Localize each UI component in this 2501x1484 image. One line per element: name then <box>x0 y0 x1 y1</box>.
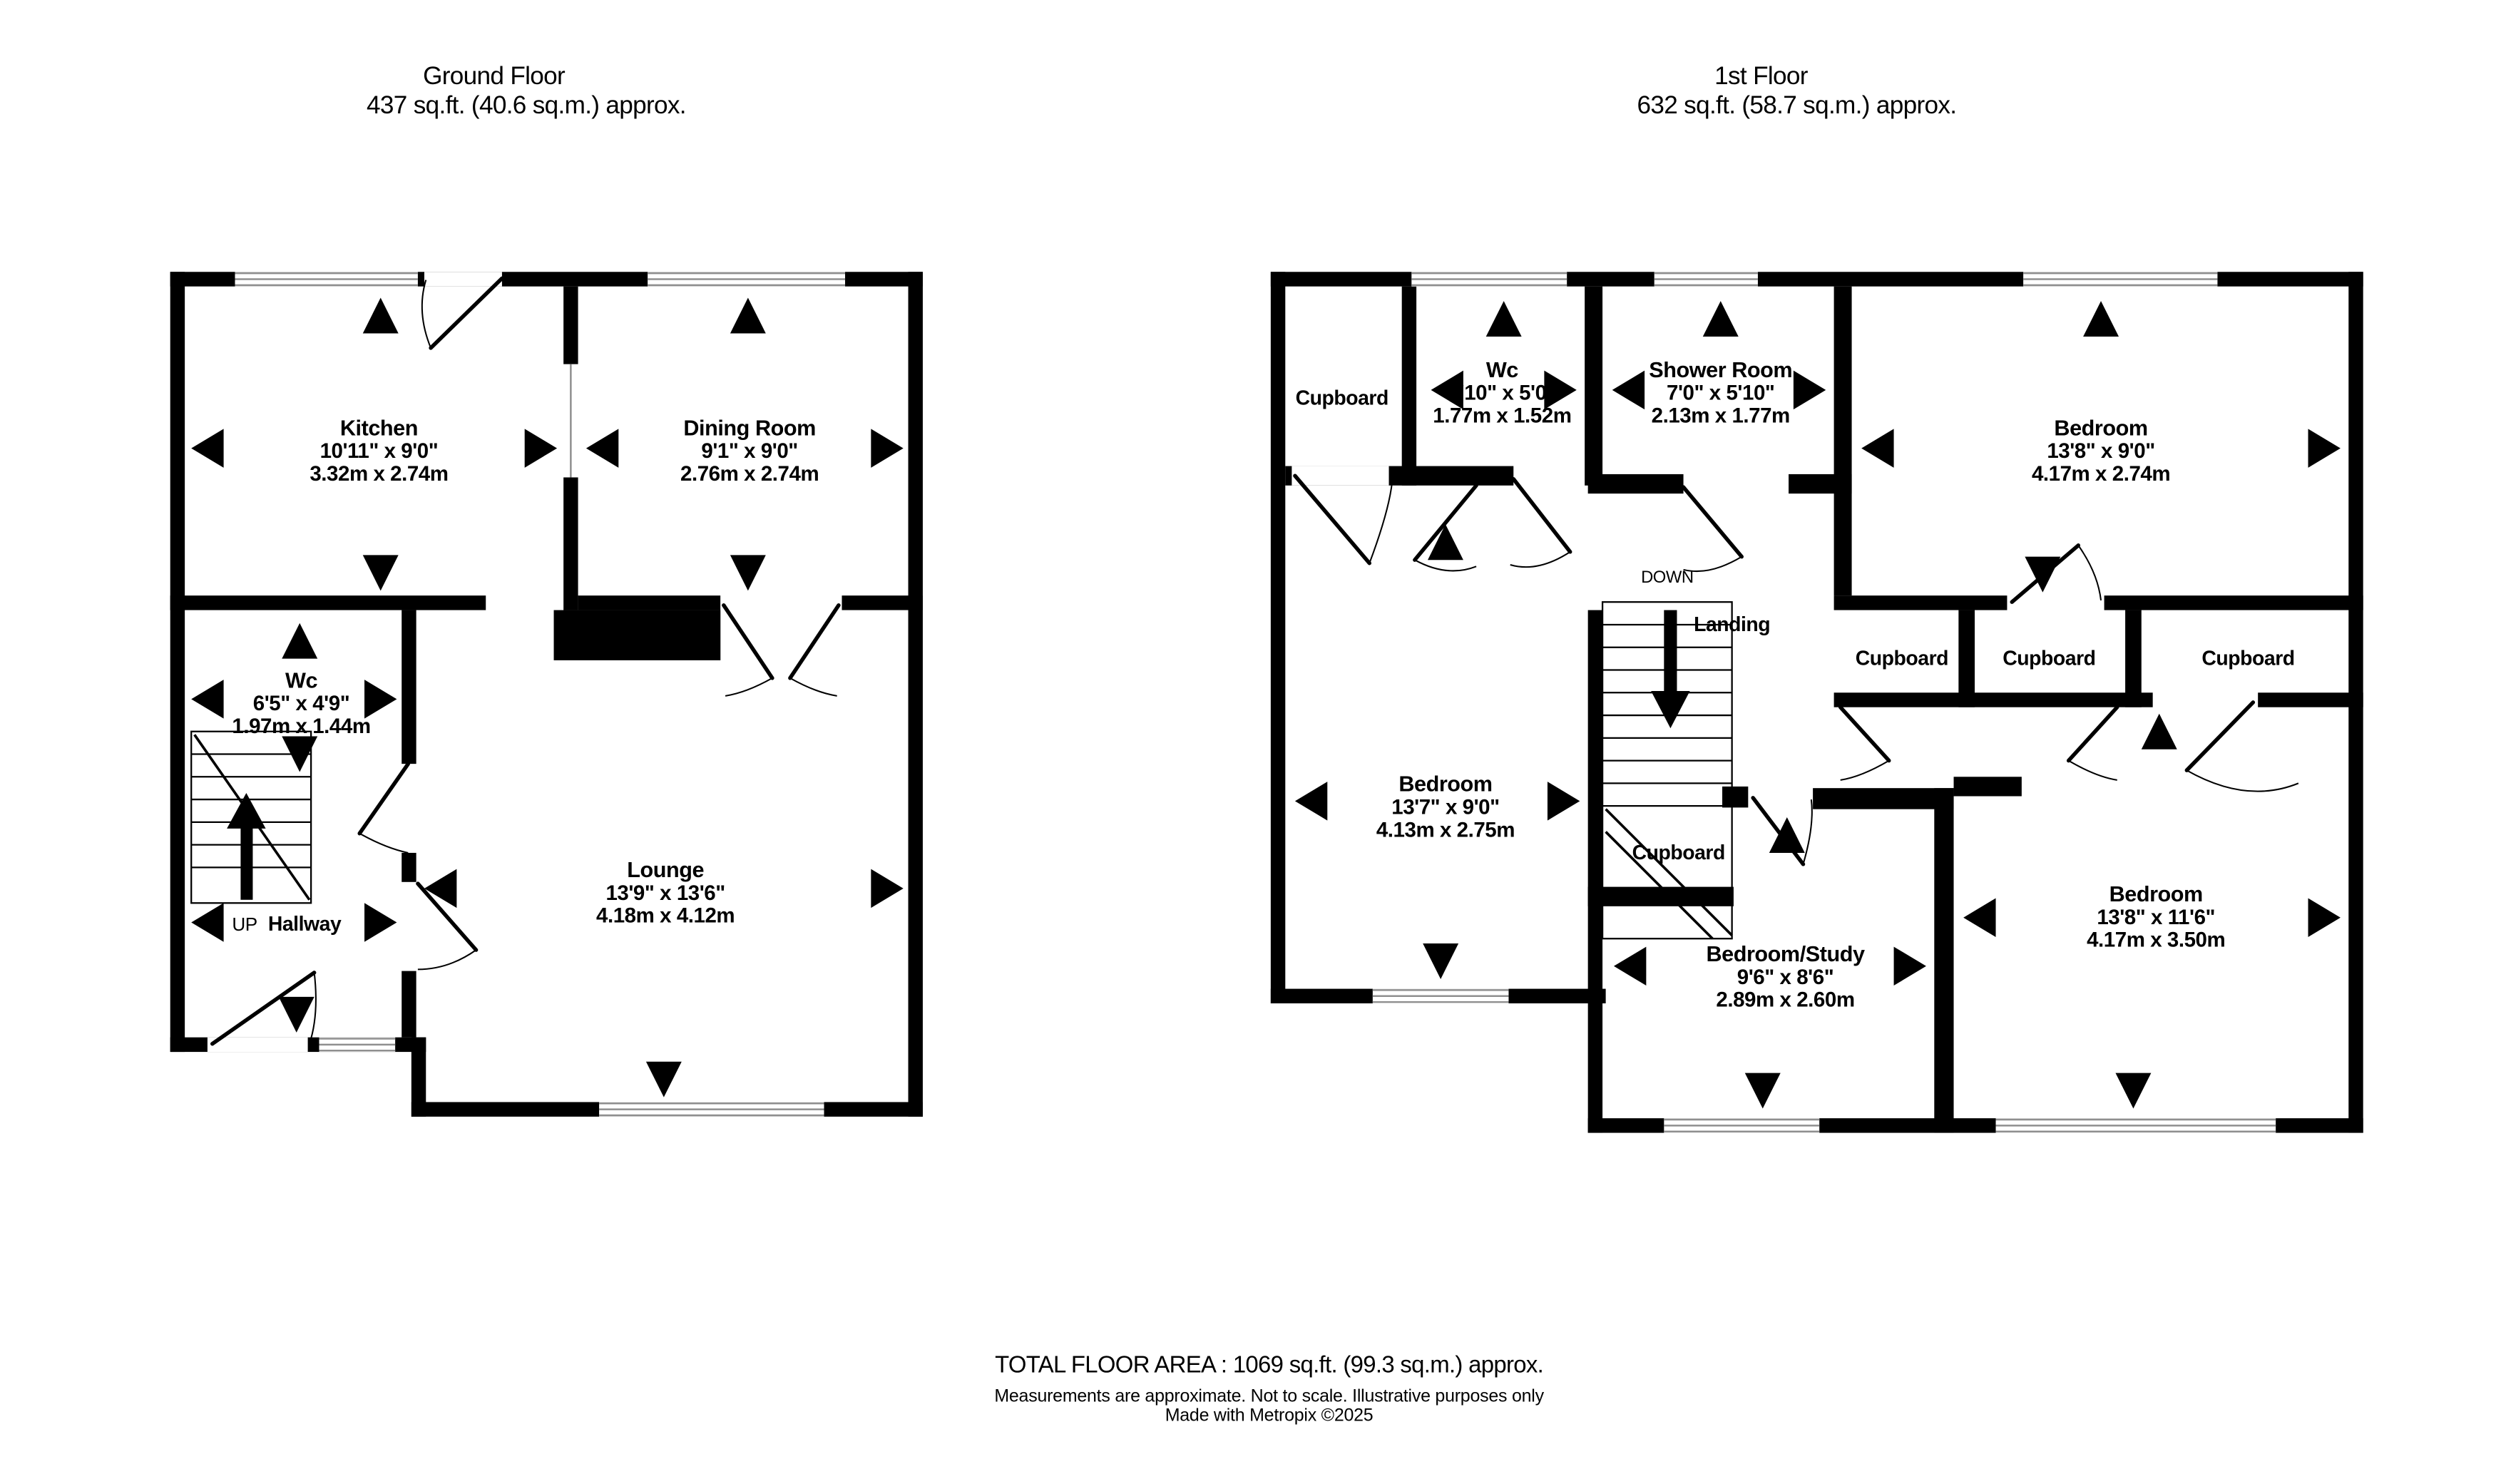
door <box>1510 479 1570 567</box>
door <box>2187 702 2298 792</box>
wall <box>1834 595 2008 610</box>
door-arc <box>725 678 772 696</box>
room-label-shower: Shower Room 7'0" x 5'10" 2.13m x 1.77m <box>1649 358 1792 428</box>
wall <box>1588 887 1734 906</box>
window <box>1373 989 1509 1003</box>
wall <box>1402 287 1416 486</box>
dimension-arrow-left <box>1963 898 1995 936</box>
door-arc <box>1841 761 1889 780</box>
dimension-arrow-left <box>586 429 618 467</box>
window <box>319 1038 395 1052</box>
wall <box>1834 692 2153 707</box>
room-name: Kitchen <box>340 416 418 440</box>
dimension-arrow-down <box>646 1062 682 1097</box>
room-name: Bedroom <box>2054 416 2147 440</box>
dimension-arrow-down <box>1423 943 1458 979</box>
door <box>1292 466 1392 563</box>
wall <box>402 853 416 882</box>
door <box>359 764 408 853</box>
room-label-dining: Dining Room 9'1" x 9'0" 2.76m x 2.74m <box>680 416 819 486</box>
door-leaf <box>431 278 502 348</box>
room-dim-metric: 1.97m x 1.44m <box>232 715 370 738</box>
door <box>2069 707 2117 780</box>
ground-floor-plan: Ground Floor 437 sq.ft. (40.6 sq.m.) app… <box>170 62 923 1117</box>
room-dim-metric: 2.76m x 2.74m <box>680 462 819 486</box>
landing-label: Landing <box>1694 613 1770 636</box>
dimension-arrow-up <box>2083 301 2119 337</box>
dimension-arrow-down <box>279 997 314 1033</box>
up-label: UP <box>232 914 257 935</box>
first-floor-plan: 1st Floor 632 sq.ft. (58.7 sq.m.) approx… <box>1271 62 2363 1133</box>
credit: Made with Metropix ©2025 <box>1165 1405 1374 1425</box>
wall <box>563 287 578 364</box>
room-name: Wc <box>285 668 317 692</box>
door-leaf <box>2187 702 2253 770</box>
room-label-wc: Wc 5'10" x 5'0" 1.77m x 1.52m <box>1433 358 1571 428</box>
down-arrow-head <box>1651 691 1689 728</box>
room-name: Wc <box>1486 358 1518 382</box>
total-floor-area: TOTAL FLOOR AREA : 1069 sq.ft. (99.3 sq.… <box>995 1351 1543 1377</box>
cupboard-label: Cupboard <box>1856 648 1948 670</box>
room-dim-imperial: 13'9" x 13'6" <box>605 881 725 905</box>
floor-area: 632 sq.ft. (58.7 sq.m.) approx. <box>1637 91 1956 119</box>
door-leaf <box>790 605 839 678</box>
floor-area: 437 sq.ft. (40.6 sq.m.) approx. <box>367 91 686 119</box>
down-label: DOWN <box>1641 568 1694 587</box>
dimension-arrow-right <box>1548 782 1580 820</box>
dimension-arrow-down <box>730 555 766 590</box>
room-dim-metric: 3.32m x 2.74m <box>310 462 448 486</box>
dimension-arrow-up <box>282 623 317 659</box>
room-label-bedroom-top: Bedroom 13'8" x 9'0" 4.17m x 2.74m <box>2032 416 2170 486</box>
wall <box>2258 692 2363 707</box>
ground-floor-room-labels: Kitchen 10'11" x 9'0" 3.32m x 2.74m Dini… <box>232 416 819 935</box>
dimension-arrow-left <box>191 903 223 941</box>
wall <box>563 477 578 610</box>
door-leaf <box>2069 707 2117 761</box>
wall <box>170 595 486 610</box>
window <box>648 272 845 286</box>
wall <box>578 595 721 610</box>
dimension-arrow-up <box>1769 817 1805 853</box>
dimension-arrow-left <box>1612 371 1645 409</box>
room-dim-metric: 1.77m x 1.52m <box>1433 404 1571 427</box>
dimension-arrow-left <box>424 869 456 908</box>
room-dim-imperial: 9'6" x 8'6" <box>1737 966 1833 989</box>
wall <box>1271 272 1285 1003</box>
room-dim-imperial: 7'0" x 5'10" <box>1667 382 1774 405</box>
stair-break-line <box>1606 809 1732 936</box>
door-arc <box>422 280 431 348</box>
room-dim-imperial: 10'11" x 9'0" <box>320 439 439 463</box>
dimension-arrow-right <box>2308 898 2341 936</box>
up-arrow-head <box>227 793 265 829</box>
room-dim-imperial: 13'8" x 11'6" <box>2097 906 2215 929</box>
dimension-arrow-right <box>525 429 557 467</box>
wall <box>1588 474 1684 493</box>
room-dim-metric: 4.13m x 2.75m <box>1376 818 1515 841</box>
floor-title: 1st Floor <box>1714 62 1809 90</box>
dimension-arrow-up <box>1428 524 1463 560</box>
ground-floor-title: Ground Floor 437 sq.ft. (40.6 sq.m.) app… <box>367 62 686 119</box>
room-name: Lounge <box>627 858 704 882</box>
wall <box>1834 287 1852 595</box>
chimney-breast <box>554 610 721 660</box>
door-leaf <box>1513 479 1570 552</box>
dimension-arrow-up <box>730 298 766 334</box>
window <box>1664 1118 1819 1132</box>
door-arc <box>1415 560 1476 570</box>
floorplan-canvas: Ground Floor 437 sq.ft. (40.6 sq.m.) app… <box>0 0 2501 1484</box>
room-name: Bedroom <box>2109 882 2203 906</box>
dimension-arrow-down <box>1745 1073 1781 1109</box>
disclaimer: Measurements are approximate. Not to sca… <box>994 1386 1544 1406</box>
window <box>1411 272 1567 286</box>
door-arc <box>1510 552 1570 567</box>
door-leaf <box>1295 476 1369 563</box>
door-opening <box>1292 466 1388 486</box>
room-dim-imperial: 5'10" x 5'0" <box>1448 382 1556 405</box>
door-arc <box>1803 799 1811 864</box>
door-opening <box>424 272 502 286</box>
wall <box>842 595 922 610</box>
dimension-arrow-down <box>2115 1073 2151 1109</box>
door-arc <box>418 950 476 969</box>
dimension-arrow-right <box>364 680 397 718</box>
dimension-arrow-left <box>1614 947 1646 986</box>
room-name: Dining Room <box>683 416 816 440</box>
wall <box>402 610 416 764</box>
room-name: Shower Room <box>1649 358 1792 382</box>
door <box>1684 487 1742 571</box>
room-dim-imperial: 9'1" x 9'0" <box>701 439 797 463</box>
door-leaf <box>1841 707 1889 761</box>
window <box>1654 272 1758 286</box>
wall <box>1954 777 2022 796</box>
door <box>2012 546 2101 602</box>
dimension-arrow-right <box>1794 371 1826 409</box>
room-dim-imperial: 13'7" x 9'0" <box>1391 795 1499 819</box>
room-name: Bedroom/Study <box>1706 942 1865 966</box>
dimension-arrow-left <box>1295 782 1327 820</box>
double-door <box>720 595 842 696</box>
dimension-arrow-right <box>871 429 903 467</box>
dimension-arrow-up <box>363 298 399 334</box>
dimension-arrow-up <box>1486 301 1522 337</box>
cupboard-label: Cupboard <box>1296 387 1388 409</box>
window <box>2023 272 2217 286</box>
wall <box>402 971 416 1038</box>
wall <box>1722 787 1748 808</box>
dimension-arrow-right <box>364 903 397 941</box>
dimension-arrow-left <box>191 429 223 467</box>
room-dim-metric: 4.17m x 2.74m <box>2032 462 2170 486</box>
cupboard-label: Cupboard <box>2003 648 2095 670</box>
room-label-study: Bedroom/Study 9'6" x 8'6" 2.89m x 2.60m <box>1706 942 1865 1012</box>
wall <box>1585 287 1602 486</box>
floor-title: Ground Floor <box>423 62 566 90</box>
door-arc <box>790 678 837 696</box>
up-arrow-shaft <box>240 822 252 900</box>
door-arc <box>359 834 408 853</box>
room-label-bedroom-bottom: Bedroom 13'8" x 11'6" 4.17m x 3.50m <box>2087 882 2225 952</box>
room-label-wc: Wc 6'5" x 4'9" 1.97m x 1.44m <box>232 668 370 738</box>
door-opening <box>720 595 842 610</box>
door-arc <box>2078 546 2101 600</box>
door-leaf <box>359 764 408 834</box>
dimension-arrow-right <box>2308 429 2341 467</box>
cupboard-label: Cupboard <box>2201 648 2294 670</box>
door <box>1841 707 1889 780</box>
door-leaf <box>1753 798 1803 864</box>
room-dim-imperial: 6'5" x 4'9" <box>253 692 349 715</box>
dimension-arrow-right <box>1894 947 1926 986</box>
room-label-kitchen: Kitchen 10'11" x 9'0" 3.32m x 2.74m <box>310 416 448 486</box>
door-arc <box>2187 770 2298 791</box>
wall <box>1588 610 1602 1133</box>
first-floor-room-labels: Cupboard Wc 5'10" x 5'0" 1.77m x 1.52m S… <box>1296 358 2295 1012</box>
window <box>599 1102 824 1116</box>
door-opening <box>208 1038 308 1052</box>
footer: TOTAL FLOOR AREA : 1069 sq.ft. (99.3 sq.… <box>994 1351 1544 1425</box>
down-arrow-shaft <box>1664 610 1677 691</box>
dimension-arrow-left <box>1861 429 1893 467</box>
window <box>235 272 417 286</box>
dimension-arrow-right <box>871 869 903 908</box>
wall <box>1934 788 1953 1132</box>
room-dim-metric: 2.13m x 1.77m <box>1652 404 1790 427</box>
wall <box>2104 595 2363 610</box>
hallway-label: Hallway <box>268 913 342 936</box>
window <box>1996 1118 2276 1132</box>
room-dim-metric: 4.17m x 3.50m <box>2087 928 2225 952</box>
door-arc <box>1369 482 1392 563</box>
door-leaf <box>724 605 772 678</box>
wall <box>170 272 185 1052</box>
door-arc <box>2069 761 2117 780</box>
room-name: Bedroom <box>1398 772 1492 797</box>
first-floor-title: 1st Floor 632 sq.ft. (58.7 sq.m.) approx… <box>1637 62 1956 119</box>
door-leaf <box>1684 487 1742 557</box>
dimension-arrow-up <box>2142 714 2177 749</box>
room-dim-metric: 4.18m x 4.12m <box>596 904 735 928</box>
wall <box>909 272 923 1117</box>
door-arc <box>310 973 316 1044</box>
room-label-lounge: Lounge 13'9" x 13'6" 4.18m x 4.12m <box>596 858 735 928</box>
room-dim-imperial: 13'8" x 9'0" <box>2047 439 2154 463</box>
dimension-arrow-down <box>363 555 399 590</box>
dimension-arrow-left <box>191 680 223 718</box>
door <box>422 272 502 348</box>
dimension-arrow-up <box>1703 301 1739 337</box>
cupboard-label: Cupboard <box>1632 841 1725 864</box>
room-dim-metric: 2.89m x 2.60m <box>1716 988 1854 1012</box>
wall <box>1813 788 1953 809</box>
room-label-bedroom-left: Bedroom 13'7" x 9'0" 4.13m x 2.75m <box>1376 772 1515 842</box>
